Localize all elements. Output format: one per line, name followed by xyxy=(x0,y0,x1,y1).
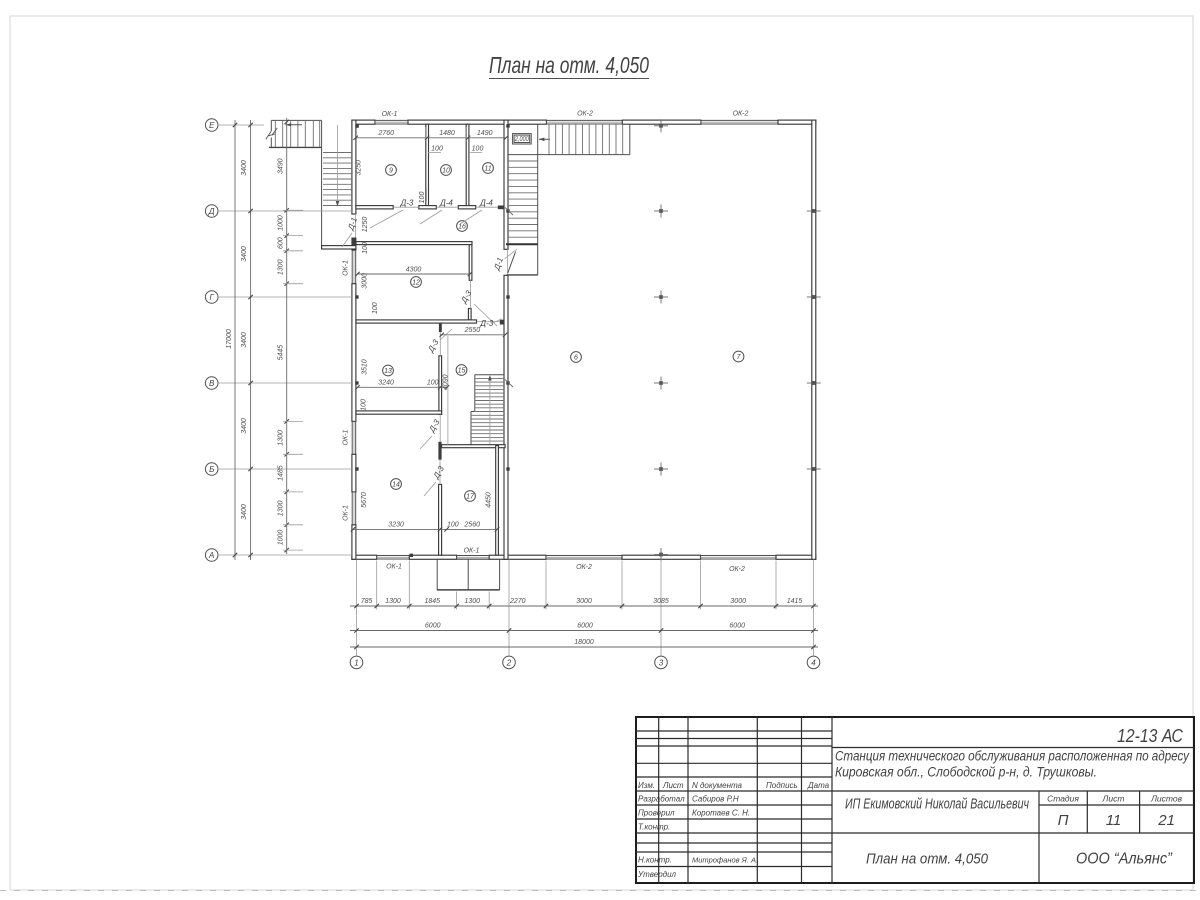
svg-text:ОК-1: ОК-1 xyxy=(343,260,350,276)
svg-text:6000: 6000 xyxy=(577,623,593,630)
svg-text:Д-4: Д-4 xyxy=(479,199,493,208)
svg-text:Т.контр.: Т.контр. xyxy=(638,823,670,832)
svg-text:3230: 3230 xyxy=(388,522,404,529)
svg-text:1300: 1300 xyxy=(277,259,284,275)
svg-text:Кировская обл., Слободской р-н: Кировская обл., Слободской р-н, д. Трушк… xyxy=(835,765,1097,780)
svg-text:Стадия: Стадия xyxy=(1047,794,1079,804)
svg-text:100: 100 xyxy=(431,146,443,153)
svg-text:3400: 3400 xyxy=(241,332,248,348)
svg-text:1845: 1845 xyxy=(425,598,441,605)
svg-text:5445: 5445 xyxy=(277,345,284,361)
svg-text:N документа: N документа xyxy=(692,781,743,790)
svg-text:Б: Б xyxy=(209,465,214,474)
svg-text:4: 4 xyxy=(811,658,816,667)
svg-text:1490: 1490 xyxy=(477,130,493,137)
svg-text:2270: 2270 xyxy=(509,598,526,605)
svg-text:18000: 18000 xyxy=(574,639,594,646)
svg-text:10: 10 xyxy=(442,168,450,175)
svg-text:6000: 6000 xyxy=(425,623,441,630)
svg-text:Е: Е xyxy=(209,121,215,130)
svg-text:100: 100 xyxy=(447,522,459,529)
svg-text:3085: 3085 xyxy=(653,598,669,605)
svg-text:Лист: Лист xyxy=(662,781,684,790)
svg-text:17000: 17000 xyxy=(226,329,233,349)
svg-text:3400: 3400 xyxy=(241,246,248,262)
svg-text:3400: 3400 xyxy=(241,504,248,520)
svg-text:100: 100 xyxy=(372,302,379,314)
svg-text:4450: 4450 xyxy=(485,492,492,508)
svg-text:3400: 3400 xyxy=(241,160,248,176)
svg-text:6: 6 xyxy=(574,355,578,362)
svg-text:3490: 3490 xyxy=(277,158,284,174)
svg-text:Утвердил: Утвердил xyxy=(637,870,677,879)
svg-text:12-13 АС: 12-13 АС xyxy=(1117,726,1184,746)
svg-text:План на отм. 4,050: План на отм. 4,050 xyxy=(866,851,989,868)
svg-text:3510: 3510 xyxy=(362,359,369,375)
svg-text:П: П xyxy=(1058,812,1069,829)
svg-text:1300: 1300 xyxy=(385,598,401,605)
svg-text:21: 21 xyxy=(1157,812,1175,829)
svg-text:ОК-1: ОК-1 xyxy=(382,111,398,118)
svg-text:2,000: 2,000 xyxy=(514,136,529,143)
svg-text:Разработал: Разработал xyxy=(638,795,685,804)
svg-text:100: 100 xyxy=(362,242,369,254)
svg-text:17: 17 xyxy=(466,494,475,501)
svg-text:2: 2 xyxy=(506,658,512,667)
svg-text:13: 13 xyxy=(384,368,392,375)
svg-text:ОК-1: ОК-1 xyxy=(464,548,480,555)
svg-text:12: 12 xyxy=(412,280,420,287)
svg-text:16: 16 xyxy=(458,224,466,231)
svg-text:1: 1 xyxy=(354,658,358,667)
svg-text:785: 785 xyxy=(361,598,373,605)
svg-text:План на отм. 4,050: План на отм. 4,050 xyxy=(489,52,649,78)
svg-text:ИП Екимовский Николай Васильев: ИП Екимовский Николай Васильевич xyxy=(845,797,1029,813)
svg-text:Станция технического обслужива: Станция технического обслуживания распол… xyxy=(835,749,1190,764)
svg-text:Сабиров Р.Н: Сабиров Р.Н xyxy=(692,795,739,804)
svg-text:6000: 6000 xyxy=(729,623,745,630)
svg-text:1485: 1485 xyxy=(277,465,284,481)
svg-text:ОК-1: ОК-1 xyxy=(343,505,350,521)
svg-text:Дата: Дата xyxy=(807,781,830,790)
svg-text:Проверил: Проверил xyxy=(638,809,675,818)
svg-text:4090: 4090 xyxy=(443,374,450,390)
svg-text:3000: 3000 xyxy=(576,598,592,605)
svg-text:Г: Г xyxy=(210,293,215,302)
svg-text:ОК-2: ОК-2 xyxy=(576,564,592,571)
svg-text:100: 100 xyxy=(360,399,367,411)
svg-text:1000: 1000 xyxy=(277,215,284,231)
svg-text:Изм.: Изм. xyxy=(638,781,655,790)
svg-text:100: 100 xyxy=(419,192,426,204)
svg-text:3400: 3400 xyxy=(241,418,248,434)
svg-text:2760: 2760 xyxy=(378,130,395,137)
svg-text:600: 600 xyxy=(277,237,284,249)
svg-text:1250: 1250 xyxy=(362,217,369,233)
svg-text:2560: 2560 xyxy=(463,522,480,529)
svg-text:Д-3: Д-3 xyxy=(400,199,414,208)
svg-text:100: 100 xyxy=(427,380,439,387)
svg-text:ОК-1: ОК-1 xyxy=(386,564,402,571)
svg-text:ОК-1: ОК-1 xyxy=(343,429,350,445)
svg-text:1000: 1000 xyxy=(277,530,284,546)
svg-text:Н.контр.: Н.контр. xyxy=(638,856,672,865)
svg-text:4300: 4300 xyxy=(406,266,422,273)
svg-text:1480: 1480 xyxy=(439,130,455,137)
svg-text:100: 100 xyxy=(472,146,484,153)
svg-text:Д: Д xyxy=(208,207,215,216)
svg-text:3000: 3000 xyxy=(730,598,746,605)
svg-text:А: А xyxy=(208,551,214,560)
svg-text:9: 9 xyxy=(389,168,393,175)
svg-text:В: В xyxy=(209,379,215,388)
svg-text:11: 11 xyxy=(484,166,491,173)
svg-text:3250: 3250 xyxy=(356,160,363,176)
svg-text:2550: 2550 xyxy=(464,327,481,334)
svg-text:Коротаев С. Н.: Коротаев С. Н. xyxy=(692,809,750,818)
svg-text:1415: 1415 xyxy=(787,598,803,605)
svg-text:11: 11 xyxy=(1106,812,1122,829)
svg-text:1300: 1300 xyxy=(277,501,284,517)
svg-text:3000: 3000 xyxy=(362,273,369,289)
svg-text:Д-3: Д-3 xyxy=(479,319,493,328)
svg-text:Митрофанов Я. А.: Митрофанов Я. А. xyxy=(692,856,758,865)
svg-text:ОК-2: ОК-2 xyxy=(733,111,749,118)
svg-text:Подпись: Подпись xyxy=(766,781,798,790)
svg-text:Листов: Листов xyxy=(1150,794,1183,804)
svg-text:Лист: Лист xyxy=(1102,794,1125,804)
svg-text:5670: 5670 xyxy=(361,492,368,508)
svg-text:1300: 1300 xyxy=(465,598,481,605)
svg-text:14: 14 xyxy=(392,482,400,489)
svg-text:ОК-2: ОК-2 xyxy=(577,111,593,118)
svg-text:ООО “Альянс”: ООО “Альянс” xyxy=(1076,851,1173,868)
svg-text:3: 3 xyxy=(659,658,664,667)
svg-text:1300: 1300 xyxy=(277,430,284,446)
svg-text:ОК-2: ОК-2 xyxy=(729,566,745,573)
svg-text:3240: 3240 xyxy=(378,380,394,387)
svg-text:15: 15 xyxy=(458,368,466,375)
svg-text:Д-4: Д-4 xyxy=(439,199,453,208)
